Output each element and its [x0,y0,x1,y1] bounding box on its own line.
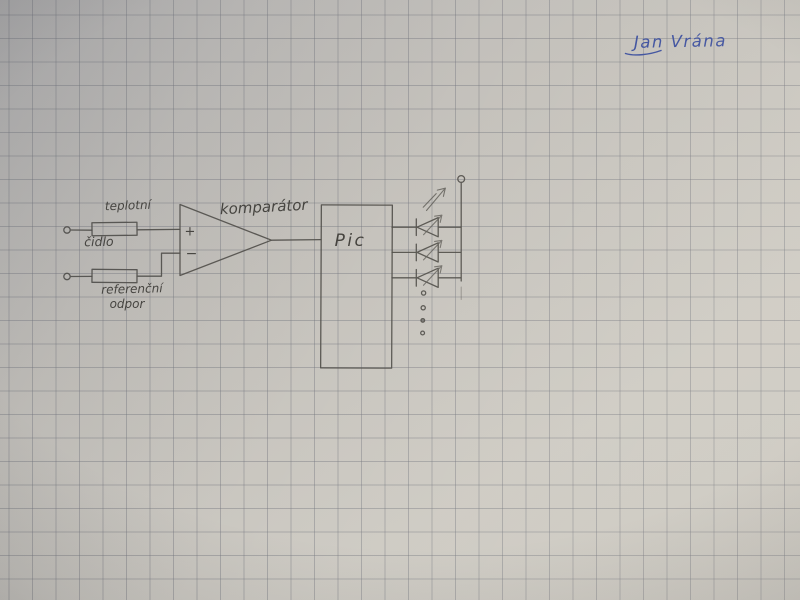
label-temperature-sensor-line1: teplotní [105,198,153,214]
pic-box [321,205,393,368]
label-pic: Pic [335,231,367,251]
label-temperature-sensor-line2: čidlo [84,234,114,250]
label-reference-line1: referenční [101,281,164,297]
led-icon [392,240,461,262]
wire-reference-to-comparator [137,253,180,276]
led-light-arrow-icon [424,240,442,260]
wire-comparator-to-pic [272,240,322,241]
label-reference-line2: odpor [110,297,146,311]
resistor-reference-icon [92,253,180,283]
comparator-plus-sign: + [185,225,196,240]
label-comparator: komparátor [219,196,308,219]
comparator-minus-sign: − [186,246,198,262]
photo-of-hand-drawn-schematic: teplotní čidlo referenční odpor + − komp… [0,0,800,600]
signature-text: Jan Vrána [631,31,727,52]
circuit-drawing: teplotní čidlo referenční odpor + − komp… [0,0,800,600]
signature: Jan Vrána [626,31,728,55]
input-terminal-bottom [64,273,92,279]
input-terminal-top [64,227,92,233]
led-icon [392,266,461,288]
ellipsis-dots [421,291,426,335]
light-emission-arrow-icon [423,188,445,210]
led-light-arrow-icon [424,215,442,235]
led-light-arrow-icon [424,266,442,286]
supply-terminal [458,176,465,300]
led-icon [392,215,461,237]
